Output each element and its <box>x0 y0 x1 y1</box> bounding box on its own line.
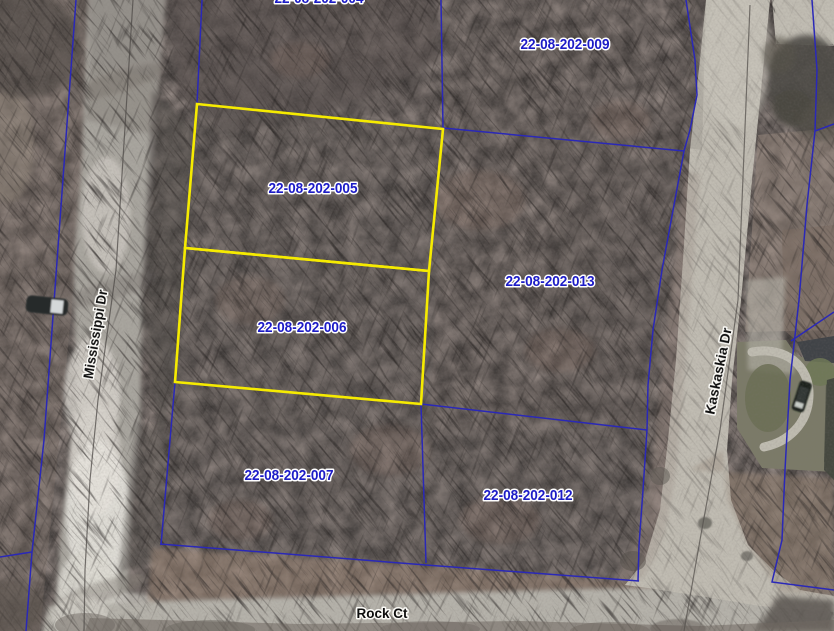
svg-text:22-08-202-004: 22-08-202-004 <box>275 0 364 7</box>
svg-text:22-08-202-013: 22-08-202-013 <box>506 274 595 290</box>
svg-text:Rock Ct: Rock Ct <box>357 606 408 621</box>
svg-text:22-08-202-009: 22-08-202-009 <box>521 37 610 53</box>
svg-text:22-08-202-012: 22-08-202-012 <box>484 488 573 504</box>
svg-text:22-08-202-006: 22-08-202-006 <box>258 320 347 336</box>
svg-text:22-08-202-005: 22-08-202-005 <box>269 181 358 197</box>
svg-text:22-08-202-007: 22-08-202-007 <box>245 468 334 484</box>
